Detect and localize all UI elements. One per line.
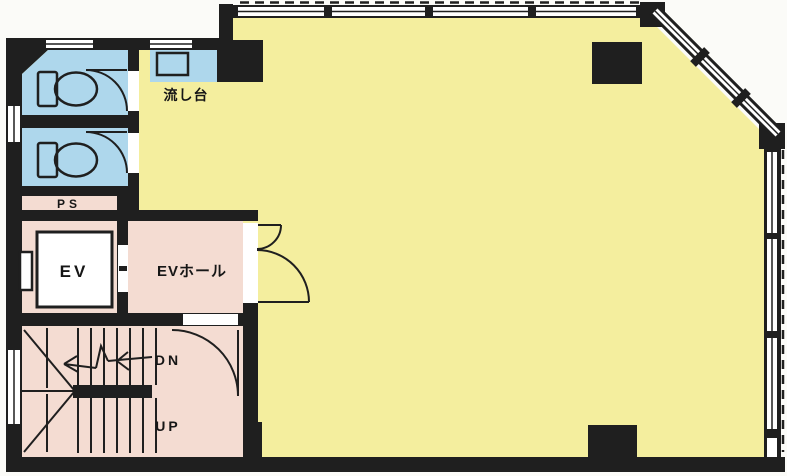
- ps-bottom-wall: [6, 210, 258, 221]
- toilet2-door-opening: [128, 133, 139, 173]
- top-left-wall: [6, 38, 233, 50]
- sink-counter: [150, 50, 217, 82]
- stair-down-label: DN: [155, 352, 181, 368]
- stair-door-opening: [183, 314, 238, 325]
- column-bottom: [588, 425, 637, 458]
- evhall-door-opening: [243, 223, 258, 303]
- column-top: [592, 42, 642, 84]
- elevator-counterweight: [20, 252, 32, 290]
- sink-wall-block: [217, 40, 263, 82]
- stair-mid-landing-divider: [73, 385, 152, 398]
- elevator-door: [118, 245, 128, 292]
- east-core-wall: [243, 303, 258, 428]
- bottom-wall: [6, 457, 785, 472]
- sink-label: 流し台: [164, 87, 209, 103]
- window-right-4: [767, 438, 777, 457]
- floor-plan: 流し台 PS EV EVホール DN UP: [0, 0, 787, 476]
- elevator-label: EV: [60, 262, 89, 281]
- toilet-bottom-wall: [6, 186, 139, 196]
- toilet-mid-wall: [6, 115, 139, 128]
- elevator-hall-label: EVホール: [157, 263, 227, 280]
- stair-up-label: UP: [155, 418, 180, 434]
- pipe-shaft-label: PS: [57, 197, 81, 211]
- toilet1-door-opening: [128, 71, 139, 111]
